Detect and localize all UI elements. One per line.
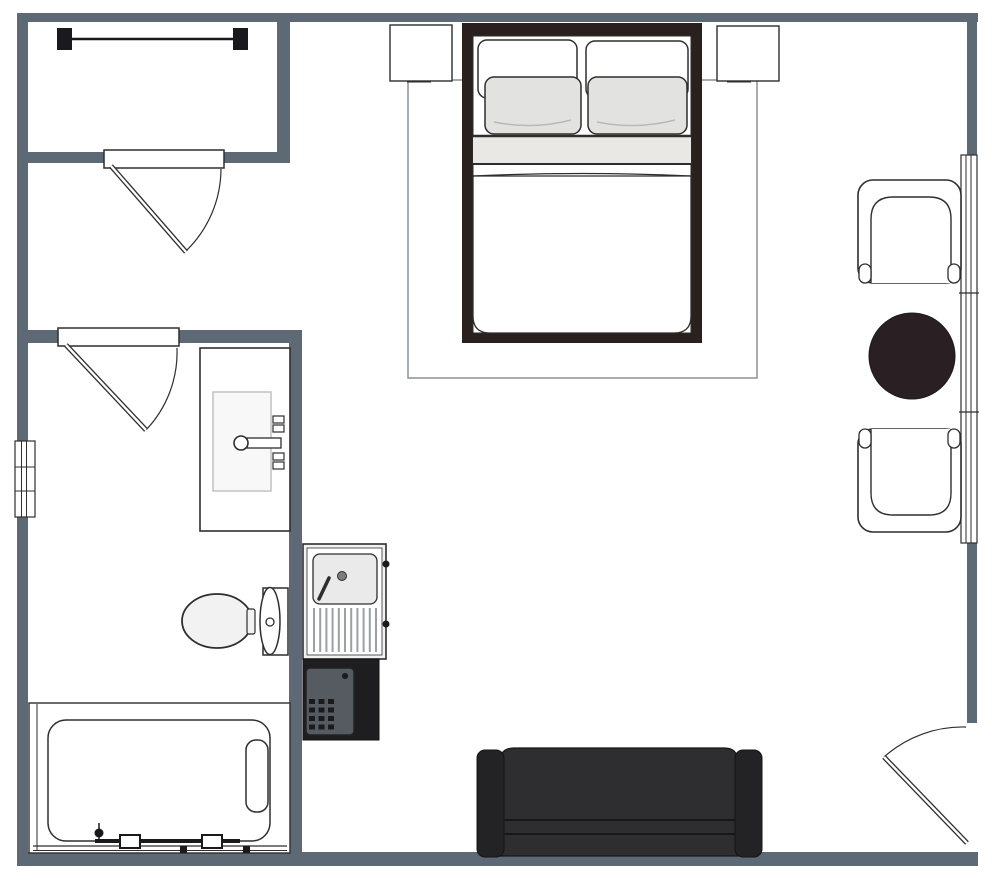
closet-door-leaf-inner — [111, 166, 186, 252]
toilet-seat-hinge — [247, 609, 255, 634]
sofa-arm-left — [477, 750, 504, 857]
bathroom-door-arc — [146, 348, 177, 430]
armchair-top-seat — [871, 197, 951, 283]
shower-door-roller-a — [180, 846, 187, 853]
toilet-flush-button — [266, 618, 274, 626]
closet-door-sill — [104, 150, 224, 168]
sofa-body — [500, 748, 738, 856]
kitchenette — [303, 544, 390, 740]
bathtub-headrest — [246, 740, 268, 812]
armchair-bottom-seat — [871, 429, 951, 515]
right-wall-upper — [967, 13, 977, 157]
nightstand-left — [390, 25, 452, 81]
armchair-bottom-arm-right — [948, 429, 960, 448]
vanity-faucet-bar — [247, 438, 281, 448]
closet-right-wall — [277, 13, 290, 163]
shower-door-handle-b — [202, 835, 222, 848]
closet — [57, 28, 248, 50]
vanity-handle-b1 — [273, 453, 284, 460]
bathroom-top-wall-left — [17, 330, 59, 343]
top-wall — [17, 13, 978, 22]
interior-wall — [289, 330, 302, 852]
shower-door-roller-b — [243, 846, 250, 853]
sheet-band — [473, 136, 691, 164]
left-wall-lower — [17, 515, 28, 866]
kitchen-sink-drain — [338, 572, 347, 581]
sitting-area — [858, 180, 961, 532]
shower-control-head — [95, 829, 104, 838]
round-side-table — [869, 313, 955, 399]
bathroom-door-leaf-inner — [66, 345, 146, 430]
duvet — [473, 176, 691, 333]
vanity-handle-a1 — [273, 416, 284, 423]
right-wall-mid — [967, 542, 977, 723]
left-wall-upper — [17, 13, 28, 443]
bathtub-basin — [48, 720, 270, 841]
vanity-handle-a2 — [273, 425, 284, 432]
left-window-frame — [15, 441, 35, 517]
mini-fridge-knob — [342, 673, 348, 679]
vanity-handle-b2 — [273, 462, 284, 469]
kitchen-sink-hinge-a — [383, 561, 390, 568]
entry-door-arc — [884, 727, 966, 757]
studio-apartment-floor-plan — [0, 0, 1000, 886]
sofa — [477, 748, 762, 857]
closet-door-arc — [186, 169, 221, 251]
armchair-top-arm-left — [859, 264, 871, 283]
bathroom — [29, 348, 290, 853]
kitchen-sink-hinge-b — [383, 621, 390, 628]
armchair-top-arm-right — [948, 264, 960, 283]
closet-bottom-wall-right — [223, 152, 290, 163]
vanity-drain — [234, 436, 248, 450]
armchair-bottom-arm-left — [859, 429, 871, 448]
right-window-frame — [961, 155, 977, 543]
closet-bottom-wall-left — [17, 152, 106, 163]
bedroom — [390, 23, 779, 378]
bathroom-door-sill — [58, 328, 179, 346]
entry-door-leaf-inner — [884, 757, 967, 843]
shower-door-handle-a — [120, 835, 140, 848]
toilet-bowl — [182, 594, 252, 648]
sofa-arm-right — [735, 750, 762, 857]
bathroom-top-wall-right — [179, 330, 302, 343]
floorplan-svg — [0, 0, 1000, 886]
nightstand-right — [717, 26, 779, 81]
